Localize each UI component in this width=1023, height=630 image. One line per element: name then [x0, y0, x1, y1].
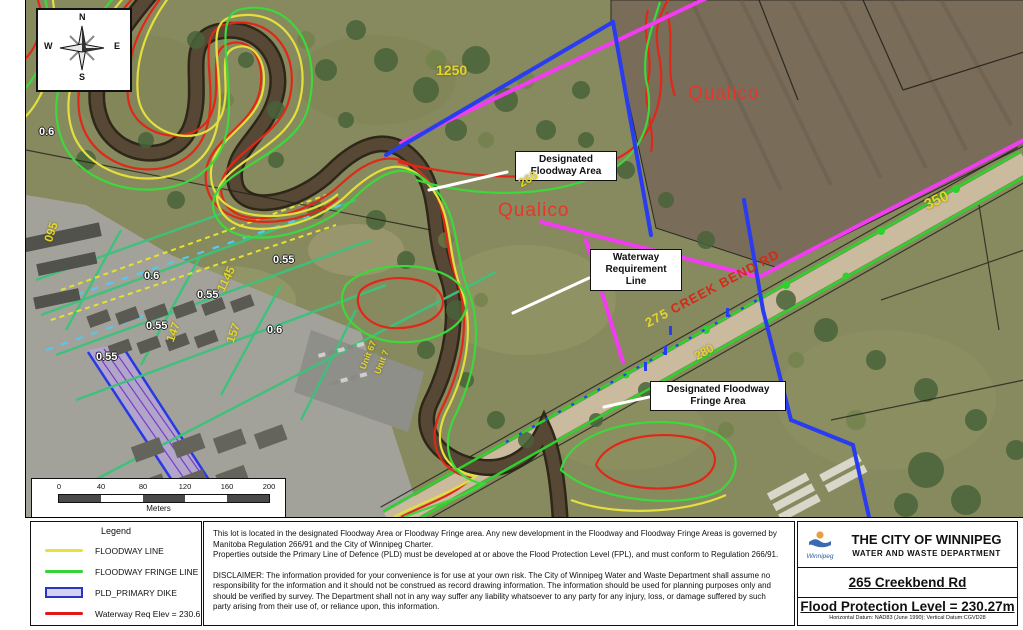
legend-title: Legend	[31, 526, 201, 536]
legend-panel: Legend FLOODWAY LINE FLOODWAY FRINGE LIN…	[30, 521, 202, 626]
title-block-header: Winnipeg THE CITY OF WINNIPEG WATER AND …	[798, 522, 1017, 568]
datum-note: Horizontal Datum: NAD83 (June 1990); Ver…	[798, 615, 1017, 621]
scale-tick-40: 40	[97, 482, 105, 491]
winnipeg-logo-icon	[805, 530, 835, 550]
label-qualico-south: Qualico	[498, 200, 569, 222]
scale-tick-200: 200	[263, 482, 276, 491]
pld-primary-dike-swatch	[45, 587, 83, 598]
callout-waterway-requirement-line: Waterway Requirement Line	[590, 249, 682, 291]
title-block: Winnipeg THE CITY OF WINNIPEG WATER AND …	[797, 521, 1018, 626]
label-elev-2: 0.6	[144, 270, 159, 282]
title-block-address-row: 265 Creekbend Rd	[798, 568, 1017, 598]
flood-map-sheet: N E S W Designated Floodway Area Waterwa…	[0, 0, 1023, 630]
compass-rose: N E S W	[36, 8, 132, 92]
label-qualico-north: Qualico	[688, 83, 759, 105]
flood-protection-level: Flood Protection Level = 230.27m	[798, 599, 1017, 614]
scale-bar: 0 40 80 120 160 200 Meters	[31, 478, 286, 518]
scale-tick-160: 160	[221, 482, 234, 491]
legend-item-label: PLD_PRIMARY DIKE	[95, 588, 177, 598]
floodway-fringe-line-swatch	[45, 570, 83, 573]
legend-item-label: FLOODWAY FRINGE LINE	[95, 567, 198, 577]
aerial-map-graphic	[26, 0, 1023, 517]
disclaimer-text: DISCLAIMER: The information provided for…	[213, 571, 785, 613]
waterway-req-swatch	[45, 612, 83, 615]
property-address: 265 Creekbend Rd	[849, 575, 967, 590]
scale-bar-segments	[58, 494, 270, 503]
title-block-fpl-row: Flood Protection Level = 230.27m Horizon…	[798, 599, 1017, 626]
scale-tick-0: 0	[57, 482, 61, 491]
legend-item-label: FLOODWAY LINE	[95, 546, 164, 556]
label-elev-6: 0.55	[146, 320, 167, 332]
compass-east-label: E	[114, 41, 120, 51]
legend-item-pld-primary-dike: PLD_PRIMARY DIKE	[31, 582, 201, 603]
scale-tick-80: 80	[139, 482, 147, 491]
notes-panel: This lot is located in the designated Fl…	[203, 521, 795, 626]
label-elev-3: 0.6	[267, 324, 282, 336]
scale-bar-unit: Meters	[32, 504, 285, 513]
map-canvas: N E S W Designated Floodway Area Waterwa…	[25, 0, 1023, 518]
winnipeg-logo-text: Winnipeg	[798, 553, 842, 560]
legend-item-floodway-fringe-line: FLOODWAY FRINGE LINE	[31, 561, 201, 582]
dept-name: WATER AND WASTE DEPARTMENT	[842, 549, 1011, 558]
label-elev-4: 0.55	[273, 254, 294, 266]
winnipeg-logo: Winnipeg	[798, 530, 842, 560]
compass-south-label: S	[79, 72, 85, 82]
callout-designated-floodway-fringe-area: Designated Floodway Fringe Area	[650, 381, 786, 411]
scale-bar-ticks: 0 40 80 120 160 200	[32, 482, 285, 492]
scale-tick-120: 120	[179, 482, 192, 491]
regulation-note: This lot is located in the designated Fl…	[213, 529, 785, 561]
floodway-line-swatch	[45, 549, 83, 552]
label-elev-5: 0.55	[197, 289, 218, 301]
org-name: THE CITY OF WINNIPEG	[842, 532, 1011, 547]
org-titles: THE CITY OF WINNIPEG WATER AND WASTE DEP…	[842, 532, 1017, 558]
compass-west-label: W	[44, 41, 53, 51]
legend-item-waterway-req: Waterway Req Elev = 230.6	[31, 603, 201, 624]
label-elev-7: 0.55	[96, 351, 117, 363]
legend-item-floodway-line: FLOODWAY LINE	[31, 540, 201, 561]
legend-item-label: Waterway Req Elev = 230.6	[95, 609, 200, 619]
label-address-1250: 1250	[436, 62, 467, 78]
label-elev-1: 0.6	[39, 126, 54, 138]
compass-north-label: N	[79, 12, 86, 22]
